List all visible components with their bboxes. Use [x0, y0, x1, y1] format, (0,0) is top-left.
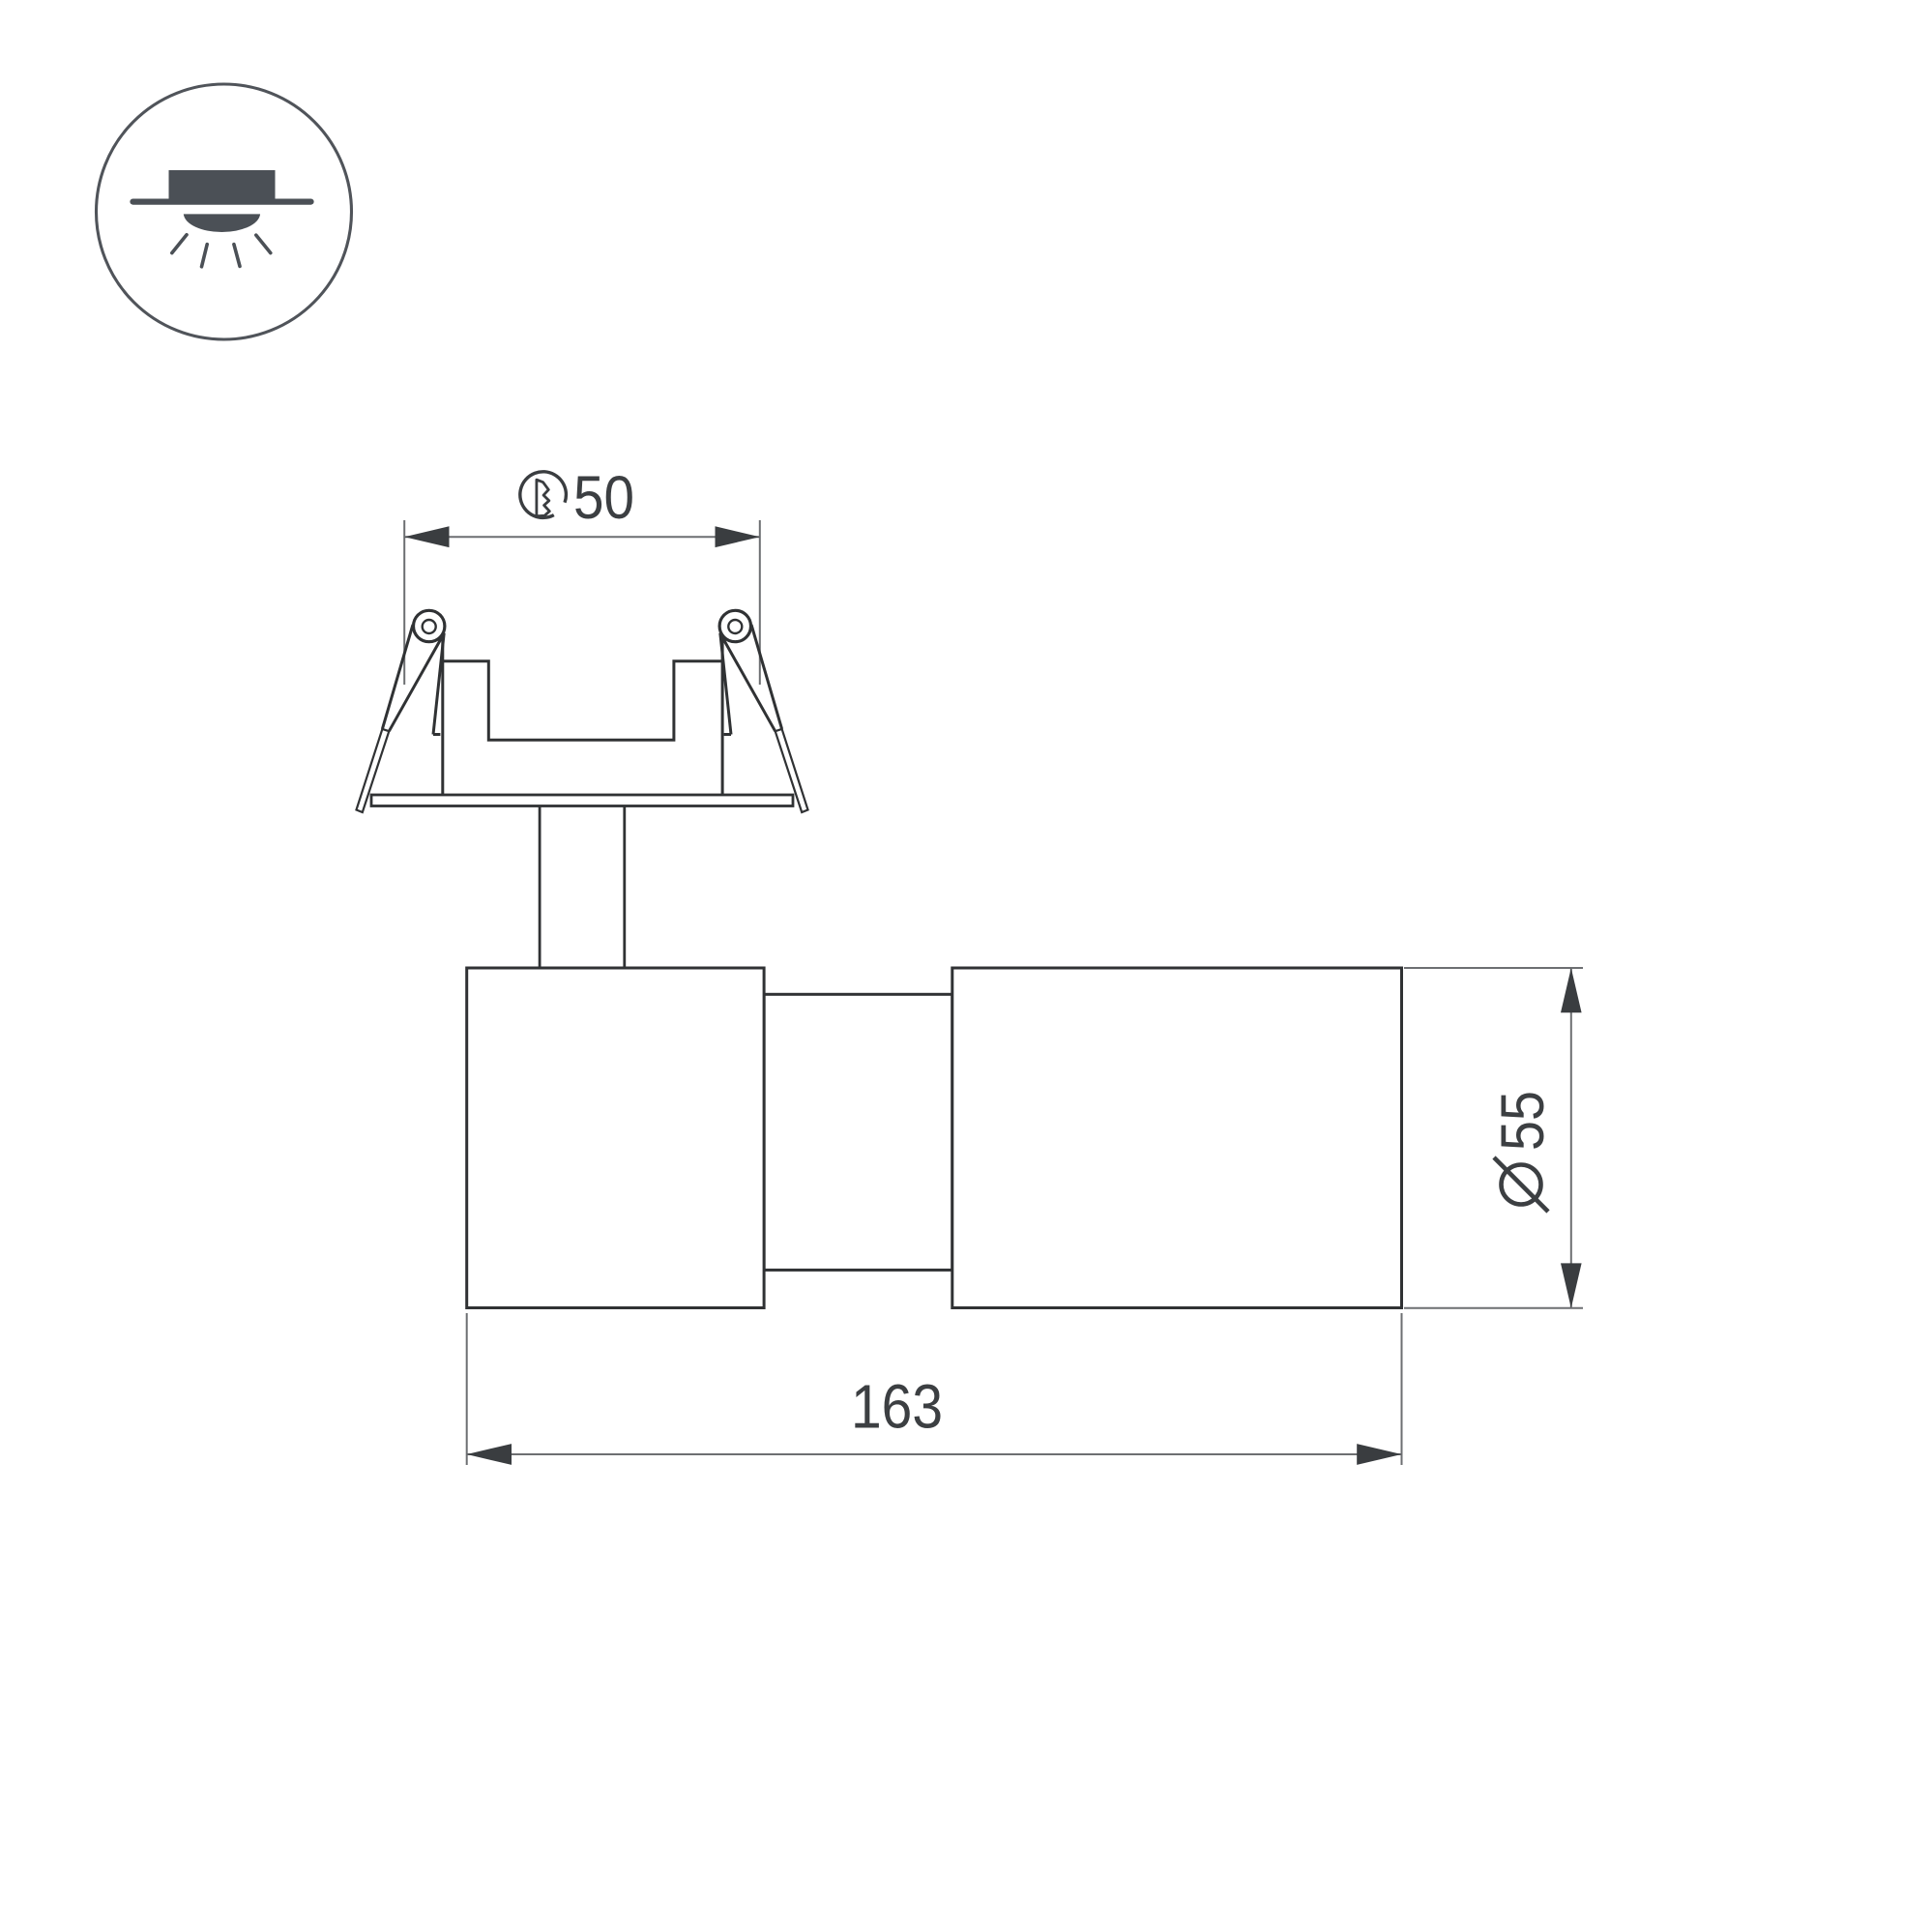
svg-text:163: 163 — [851, 1373, 943, 1442]
svg-text:55: 55 — [1489, 1091, 1557, 1151]
svg-text:50: 50 — [573, 464, 634, 532]
